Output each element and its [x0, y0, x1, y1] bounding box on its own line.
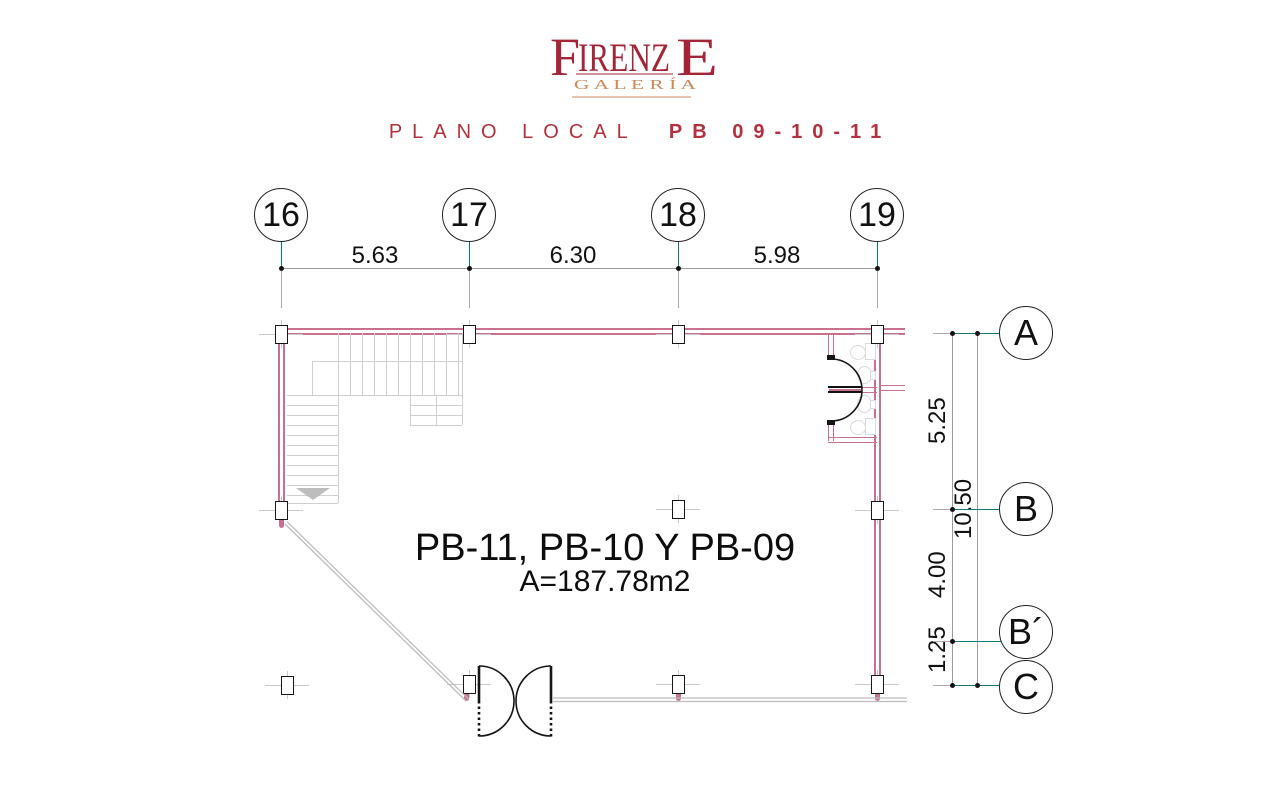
- entrance-door-leaf-left: [479, 666, 514, 736]
- grid-bubble-b: B: [999, 482, 1053, 536]
- entrance-door-leaf-right: [516, 666, 551, 736]
- dimension-node: [279, 266, 284, 271]
- dimension-node: [975, 331, 980, 336]
- grid-bubble-19: 19: [850, 188, 904, 242]
- dimension-node: [950, 507, 955, 512]
- stair-arrow: [296, 488, 330, 500]
- floor-plan-sheet: F IRENZ E G A L E R Í A PLANO LOCAL PB 0…: [0, 0, 1280, 800]
- bathroom-door-hinge-lower: [827, 420, 835, 425]
- grid-bubble-c: C: [999, 660, 1053, 714]
- dimension-node: [975, 683, 980, 688]
- dimension-node: [467, 266, 472, 271]
- grid-bubble-18: 18: [651, 188, 705, 242]
- grid-bubble-16: 16: [254, 188, 308, 242]
- dimension-node: [950, 331, 955, 336]
- diagonal-wall-line: [287, 522, 468, 699]
- dimension-node: [950, 639, 955, 644]
- bathroom-door-swings: [831, 359, 862, 421]
- diagonal-wall-line: [285, 524, 466, 701]
- dimension-node: [875, 266, 880, 271]
- bathroom-door-hinge-upper: [827, 355, 835, 360]
- grid-bubble-a: A: [999, 306, 1053, 360]
- dimension-node: [950, 683, 955, 688]
- grid-bubble-b-prime: B´: [999, 605, 1053, 659]
- plan-linework: [0, 0, 1280, 800]
- dimension-node: [676, 266, 681, 271]
- grid-bubble-17: 17: [442, 188, 496, 242]
